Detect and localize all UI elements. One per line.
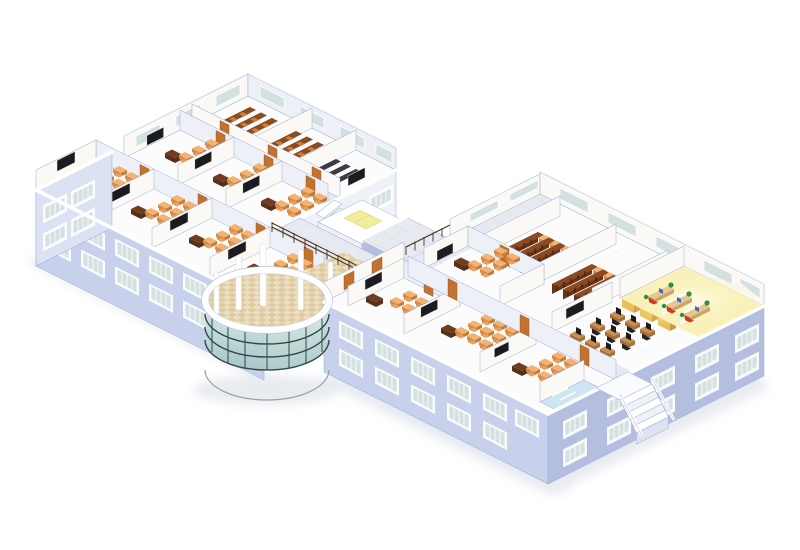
isometric-building-svg: [0, 0, 800, 550]
building-render: [0, 0, 800, 550]
